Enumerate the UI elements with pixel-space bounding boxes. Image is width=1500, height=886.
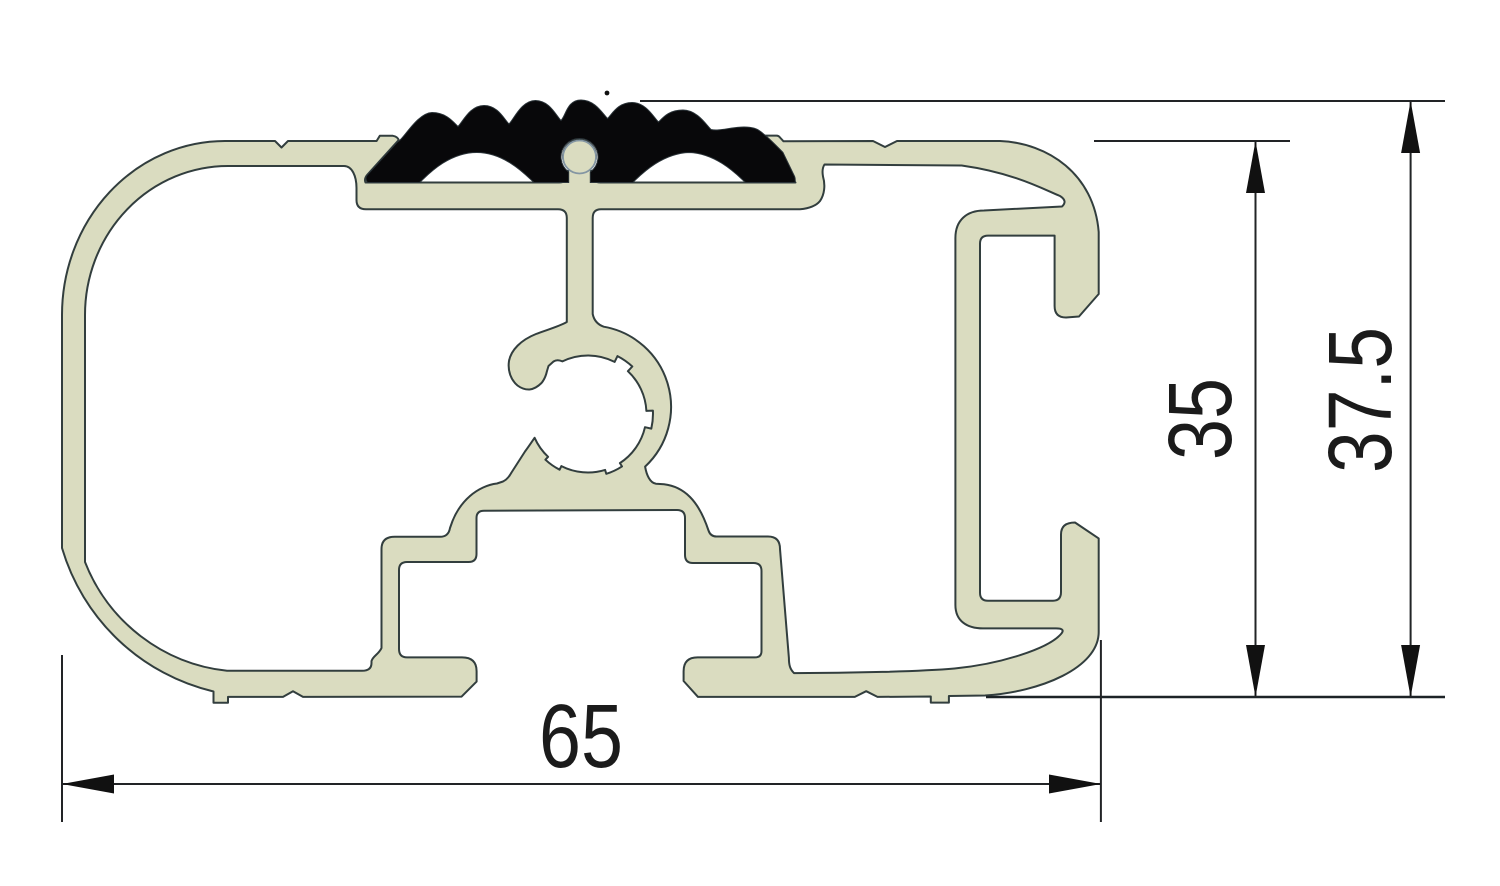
svg-text:65: 65 [539, 687, 623, 787]
svg-text:37.5: 37.5 [1311, 327, 1411, 473]
svg-text:35: 35 [1151, 378, 1251, 460]
